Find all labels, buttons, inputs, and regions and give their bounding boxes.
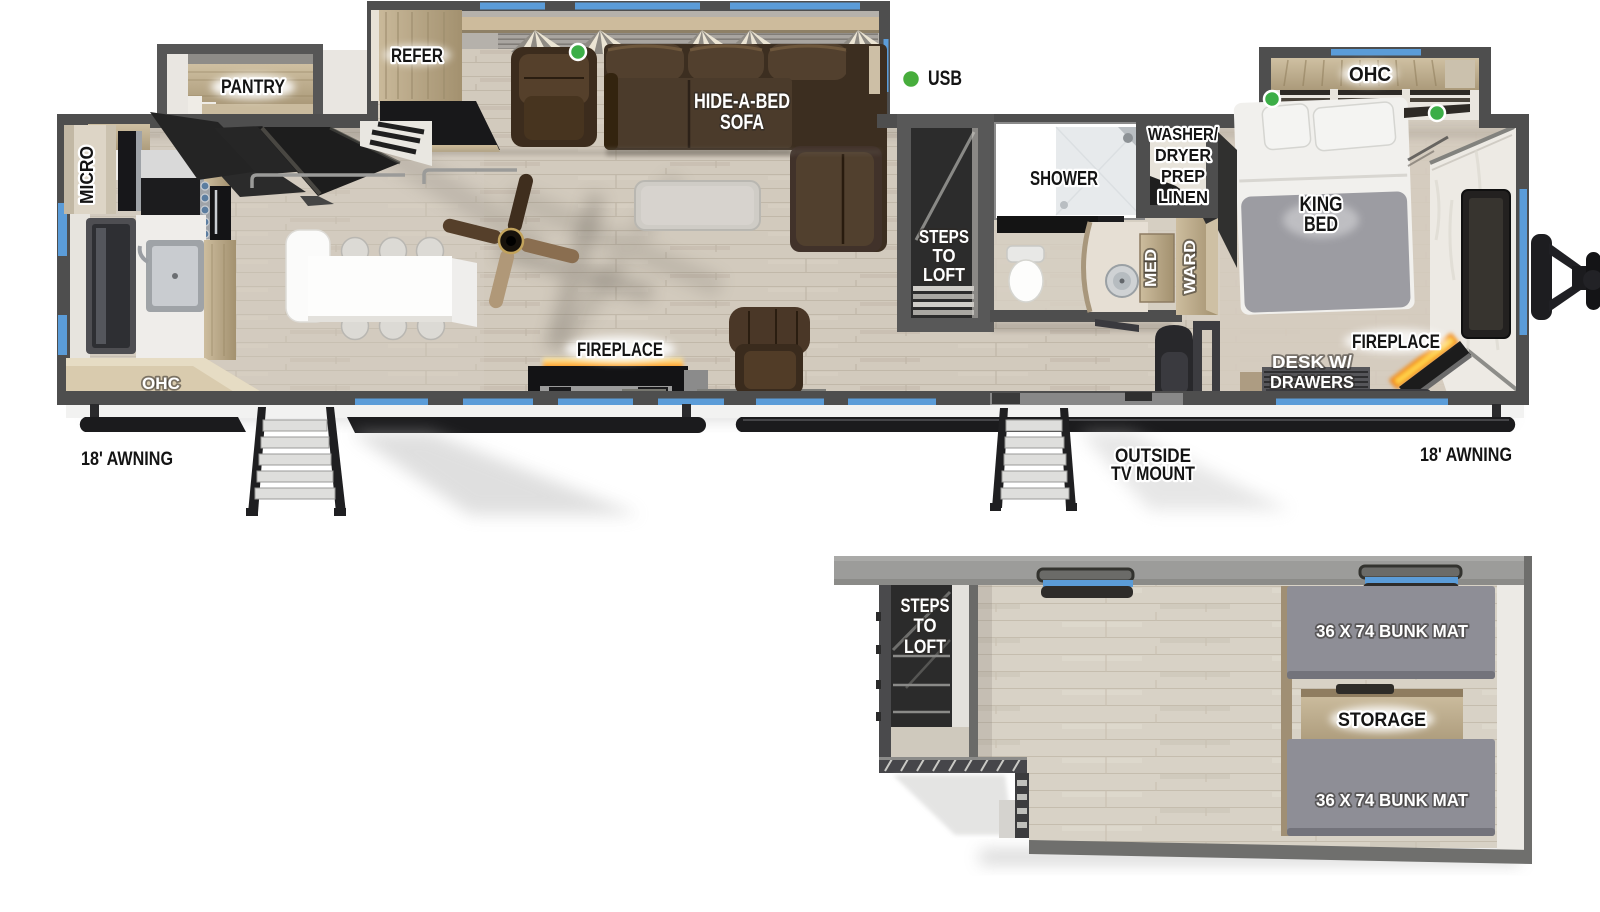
- svg-text:HIDE-A-BED: HIDE-A-BED: [694, 90, 790, 113]
- svg-text:TO: TO: [914, 616, 937, 637]
- svg-text:REFER: REFER: [391, 46, 443, 67]
- svg-text:PREP: PREP: [1161, 166, 1205, 186]
- svg-text:PANTRY: PANTRY: [221, 77, 285, 98]
- svg-text:TO: TO: [933, 246, 956, 266]
- svg-text:FIREPLACE: FIREPLACE: [1352, 332, 1440, 353]
- svg-text:TV MOUNT: TV MOUNT: [1111, 464, 1195, 485]
- svg-text:STEPS: STEPS: [901, 596, 950, 617]
- svg-text:18' AWNING: 18' AWNING: [1420, 445, 1512, 466]
- svg-text:DESK W/: DESK W/: [1272, 352, 1352, 372]
- svg-text:18' AWNING: 18' AWNING: [81, 449, 173, 470]
- svg-text:MICRO: MICRO: [77, 146, 97, 204]
- svg-text:STEPS: STEPS: [919, 227, 969, 247]
- svg-text:WASHER/: WASHER/: [1148, 124, 1218, 144]
- svg-text:OHC: OHC: [142, 374, 180, 393]
- svg-text:LINEN: LINEN: [1158, 187, 1208, 207]
- svg-text:USB: USB: [928, 67, 962, 90]
- svg-text:DRYER: DRYER: [1155, 145, 1211, 165]
- svg-text:LOFT: LOFT: [904, 637, 946, 658]
- svg-text:36 X 74 BUNK MAT: 36 X 74 BUNK MAT: [1316, 621, 1468, 641]
- svg-text:FIREPLACE: FIREPLACE: [577, 340, 663, 361]
- svg-text:SOFA: SOFA: [720, 111, 764, 134]
- svg-text:LOFT: LOFT: [923, 265, 965, 285]
- svg-text:36 X 74 BUNK MAT: 36 X 74 BUNK MAT: [1316, 790, 1468, 810]
- svg-text:STORAGE: STORAGE: [1338, 710, 1426, 731]
- svg-text:SHOWER: SHOWER: [1030, 168, 1098, 190]
- svg-text:DRAWERS: DRAWERS: [1270, 372, 1354, 392]
- svg-text:BED: BED: [1304, 213, 1338, 236]
- svg-text:OHC: OHC: [1349, 64, 1391, 86]
- svg-text:MED: MED: [1143, 249, 1160, 287]
- svg-text:WARD: WARD: [1182, 240, 1199, 294]
